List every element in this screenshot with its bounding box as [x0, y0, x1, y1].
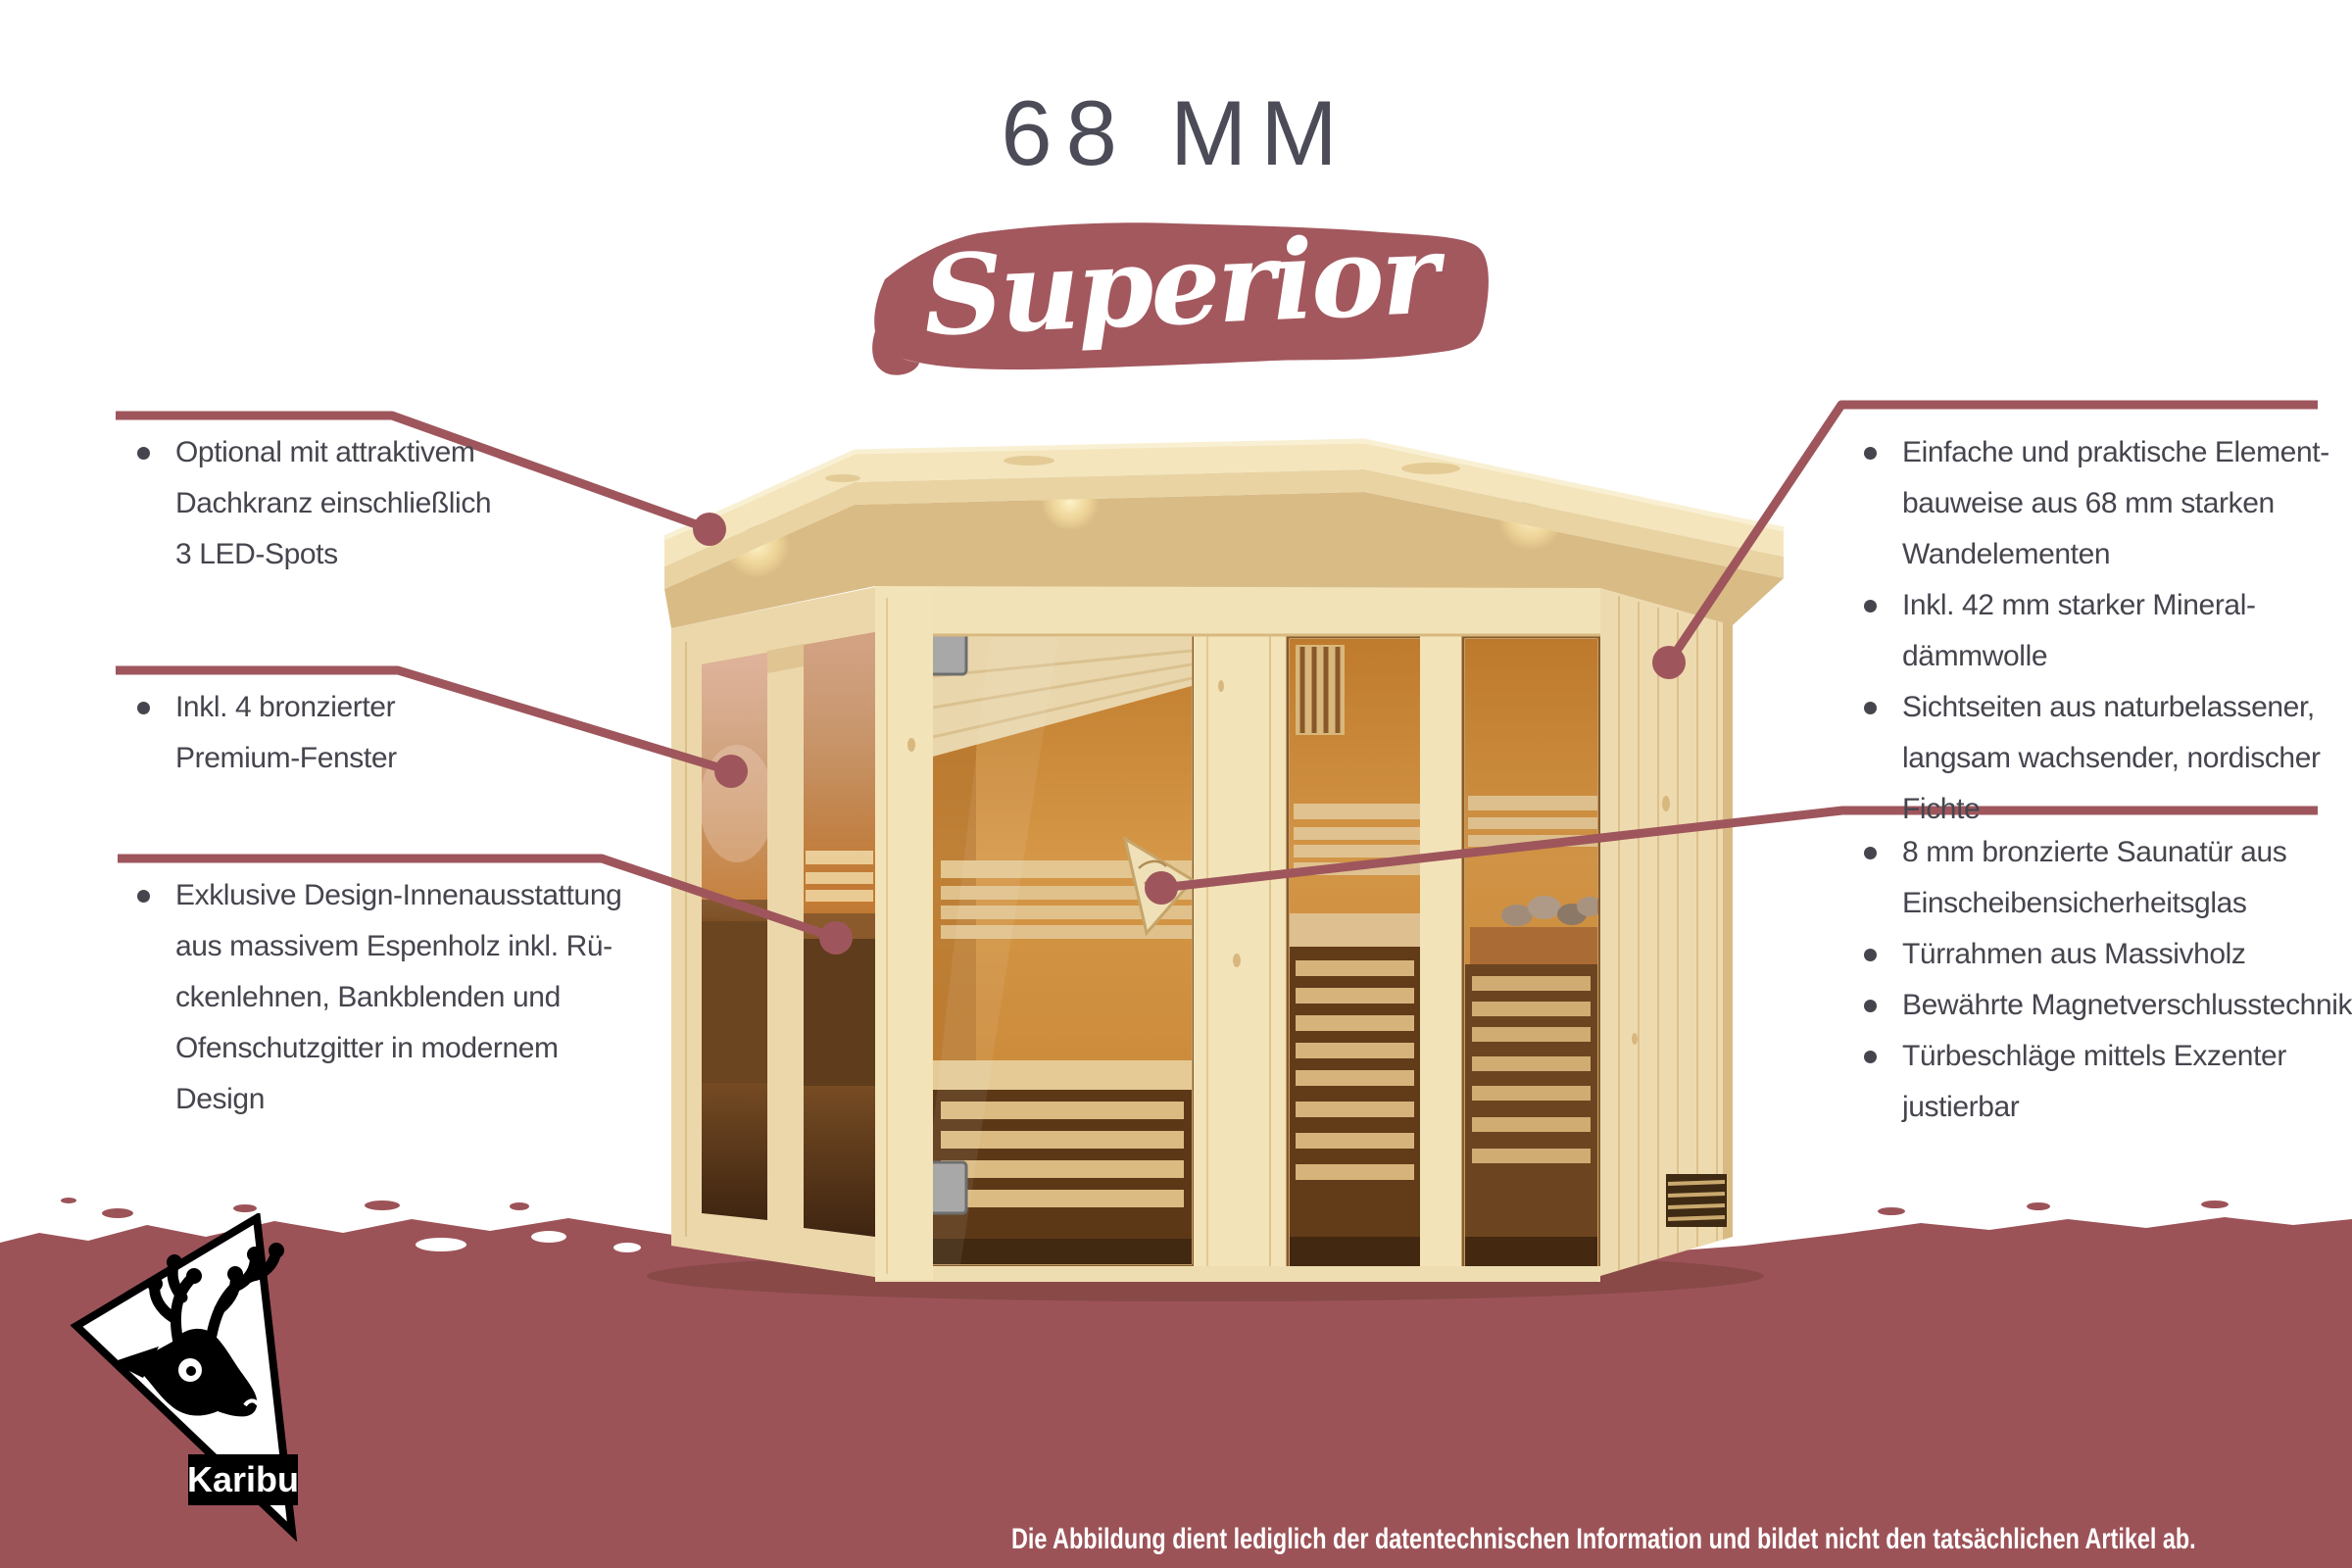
bullet-icon: [1864, 702, 1877, 714]
callout-text-line: dämmwolle: [1902, 631, 2256, 682]
callout-right-construction: Einfache und praktische Element- bauweis…: [1864, 427, 2329, 835]
callout-right-door: 8 mm bronzierte Saunatür aus Einscheiben…: [1864, 827, 2352, 1133]
callout-left-roof: Optional mit attraktivem Dachkranz einsc…: [137, 427, 491, 580]
callout-left-windows: Inkl. 4 bronzierter Premium-Fenster: [137, 682, 397, 784]
logo-wordmark: Karibu: [187, 1459, 299, 1499]
callout-text-line: Türbeschläge mittels Exzenter: [1902, 1031, 2286, 1082]
sauna-cabin: [664, 441, 1784, 1282]
callout-text-line: ckenlehnen, Bankblenden und: [175, 972, 621, 1023]
sauna-right-wall: [1600, 586, 1733, 1276]
callout-text-line: Wandelementen: [1902, 529, 2329, 580]
bullet-icon: [1864, 1051, 1877, 1063]
bullet-icon: [1864, 1000, 1877, 1012]
callout-text-line: Inkl. 4 bronzierter: [175, 682, 397, 733]
callout-text-line: Sichtseiten aus naturbelassener,: [1902, 682, 2321, 733]
callout-text-line: Exklusive Design-Innenausstattung: [175, 870, 621, 921]
callout-text-line: Bewährte Magnetverschlusstechnik: [1902, 980, 2352, 1031]
bullet-icon: [1864, 600, 1877, 612]
callout-text-line: Einfache und praktische Element-: [1902, 427, 2329, 478]
callout-text-line: Design: [175, 1074, 621, 1125]
callout-text-line: 3 LED-Spots: [175, 529, 491, 580]
callout-text-line: Premium-Fenster: [175, 733, 397, 784]
callout-text-line: Türrahmen aus Massivholz: [1902, 929, 2246, 980]
callout-text-line: justierbar: [1902, 1082, 2286, 1133]
page-title: 68 MM: [0, 82, 2352, 184]
callout-text-line: Ofenschutzgitter in modernem: [175, 1023, 621, 1074]
bullet-icon: [137, 702, 150, 714]
bullet-icon: [1864, 949, 1877, 961]
sauna-front-wall: [875, 584, 1602, 1282]
callout-text-line: bauweise aus 68 mm starken: [1902, 478, 2329, 529]
superior-label: Superior: [858, 214, 1502, 359]
callout-text-line: Inkl. 42 mm starker Mineral-: [1902, 580, 2256, 631]
callout-text-line: 8 mm bronzierte Saunatür aus: [1902, 827, 2286, 878]
footer-disclaimer: Die Abbildung dient lediglich der datent…: [1011, 1520, 2196, 1559]
bullet-icon: [1864, 847, 1877, 859]
front-glass-panel-1: [1288, 637, 1422, 1268]
callout-text-line: langsam wachsender, nordischer: [1902, 733, 2321, 784]
callout-left-interior: Exklusive Design-Innenausstattung aus ma…: [137, 870, 621, 1125]
callout-text-line: Optional mit attraktivem: [175, 427, 491, 478]
callout-text-line: aus massivem Espenholz inkl. Rü-: [175, 921, 621, 972]
superior-badge: Superior: [860, 216, 1499, 382]
callout-text-line: Dachkranz einschließlich: [175, 478, 491, 529]
callout-text-line: Einscheibensicherheitsglas: [1902, 878, 2286, 929]
karibu-logo: Karibu: [63, 1213, 308, 1542]
infographic-page: { "title": "68 MM", "badge": { "label": …: [0, 0, 2352, 1568]
bullet-icon: [137, 890, 150, 903]
vent-grille: [1666, 1174, 1727, 1227]
bullet-icon: [1864, 447, 1877, 460]
front-glass-panel-2: [1463, 637, 1602, 1268]
sauna-door: [925, 631, 1194, 1266]
bullet-icon: [137, 447, 150, 460]
